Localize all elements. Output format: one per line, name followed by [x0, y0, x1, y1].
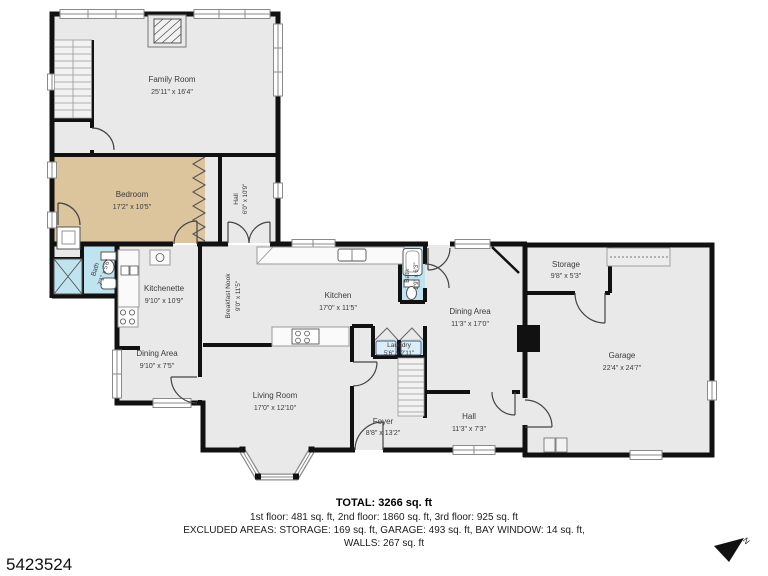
- window: [708, 381, 717, 400]
- room-dims-upper-hall: 6'0" x 10'9": [242, 184, 249, 215]
- room-dims-dining-left: 9'10" x 7'5": [140, 363, 175, 370]
- bedroom-closet-floor: [205, 155, 220, 243]
- kitchenette-stove: [118, 307, 138, 327]
- window: [48, 212, 57, 228]
- room-dims-foyer: 8'8" x 13'2": [366, 430, 401, 437]
- room-label-foyer: Foyer: [373, 417, 394, 426]
- room-label-main-bath: Bath: [404, 269, 411, 283]
- skylight: [148, 15, 186, 47]
- north-arrow-icon: N: [714, 536, 752, 562]
- room-label-dining-right: Dining Area: [449, 307, 491, 316]
- upper-staircase: [55, 40, 92, 118]
- total-area-text: TOTAL: 3266 sq. ft: [336, 497, 433, 509]
- room-label-lower-hall: Hall: [462, 412, 476, 421]
- room-dims-bedroom: 17'2" x 10'5": [113, 204, 152, 211]
- floor-areas-text: 1st floor: 481 sq. ft, 2nd floor: 1860 s…: [250, 512, 518, 523]
- room-label-upper-hall: Hall: [233, 193, 240, 205]
- room-label-kitchenette: Kitchenette: [144, 284, 185, 293]
- shower: [54, 259, 82, 294]
- window: [630, 451, 662, 460]
- north-arrow-label: N: [741, 536, 752, 546]
- room-dims-dining-right: 11'3" x 17'0": [451, 321, 489, 328]
- walls-area-text: WALLS: 267 sq. ft: [344, 538, 424, 549]
- floor-plan-page: Family Room 25'11" x 16'4" Bedroom 17'2"…: [0, 0, 768, 576]
- room-label-dining-left: Dining Area: [136, 349, 178, 358]
- room-dims-kitchen: 17'0" x 11'5": [319, 305, 357, 312]
- room-label-kitchen: Kitchen: [325, 291, 352, 300]
- window: [194, 10, 270, 19]
- room-dims-storage: 9'8" x 5'3": [551, 273, 582, 280]
- room-dims-kitchenette: 9'10" x 10'9": [145, 298, 184, 305]
- upper-hall-floor: [220, 155, 278, 243]
- kitchen-peninsula: [272, 327, 349, 346]
- window: [274, 24, 283, 96]
- water-heater: [57, 227, 80, 249]
- room-dims-family-room: 25'11" x 16'4": [151, 89, 193, 96]
- room-label-family-room: Family Room: [148, 75, 195, 84]
- chimney: [517, 325, 540, 352]
- room-dims-living-room: 17'0" x 12'10": [254, 405, 297, 412]
- window: [453, 446, 495, 455]
- room-dims-laundry: 5'6" x 2'11": [384, 350, 414, 357]
- room-label-laundry: Laundry: [387, 342, 412, 349]
- kitchenette-counter: [118, 250, 139, 307]
- foyer-staircase: [398, 358, 424, 416]
- floor-plan-svg: Family Room 25'11" x 16'4" Bedroom 17'2"…: [0, 0, 768, 576]
- window: [455, 240, 490, 249]
- window: [274, 183, 283, 198]
- room-label-storage: Storage: [552, 260, 581, 269]
- room-label-living-room: Living Room: [253, 391, 298, 400]
- room-dims-main-bath: 2'9" x 6'3": [413, 262, 420, 289]
- window: [60, 10, 144, 19]
- garage-shelf: [607, 248, 670, 266]
- window: [48, 162, 57, 178]
- room-dims-lower-hall: 11'3" x 7'3": [452, 426, 486, 433]
- area-summary: TOTAL: 3266 sq. ft 1st floor: 481 sq. ft…: [183, 497, 585, 549]
- room-dims-garage: 22'4" x 24'7": [603, 365, 642, 372]
- kitchen-counter: [257, 247, 404, 264]
- kitchenette-sink-cabinet: [150, 250, 170, 265]
- window: [113, 350, 122, 398]
- room-label-breakfast-nook: Breakfast Nook: [225, 273, 232, 319]
- listing-id: 5423524: [6, 555, 72, 574]
- excluded-areas-text: EXCLUDED AREAS: STORAGE: 169 sq. ft, GAR…: [183, 525, 585, 536]
- room-label-bedroom: Bedroom: [116, 190, 149, 199]
- room-label-garage: Garage: [609, 351, 636, 360]
- room-dims-breakfast-nook: 9'0" x 11'5": [235, 281, 242, 311]
